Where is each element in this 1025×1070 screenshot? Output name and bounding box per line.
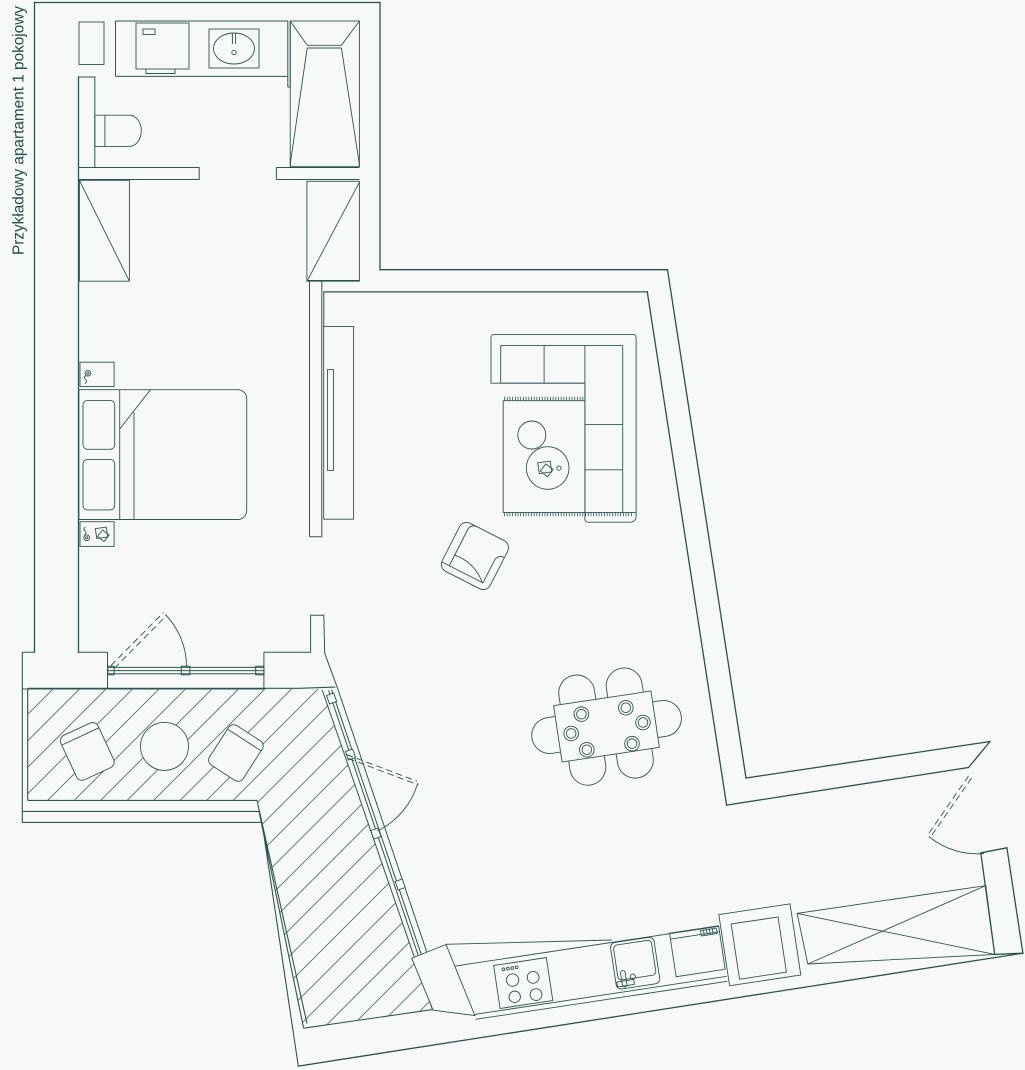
svg-text:Przykładowy apartament 1 pokoj: Przykładowy apartament 1 pokojowy: [11, 6, 28, 255]
